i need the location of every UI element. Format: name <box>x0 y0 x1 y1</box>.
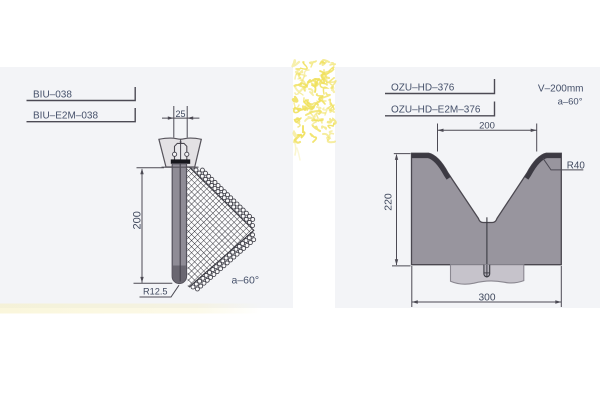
svg-text:OZU–HD–376: OZU–HD–376 <box>391 83 455 94</box>
svg-text:OZU–HD–E2M–376: OZU–HD–E2M–376 <box>391 105 481 116</box>
svg-text:a–60°: a–60° <box>232 275 260 287</box>
svg-text:25: 25 <box>175 109 185 119</box>
svg-text:200: 200 <box>132 211 144 229</box>
svg-text:200: 200 <box>479 121 495 132</box>
svg-text:BIU–E2M–038: BIU–E2M–038 <box>33 111 98 122</box>
svg-text:a–60°: a–60° <box>558 97 583 108</box>
svg-text:300: 300 <box>479 293 496 304</box>
svg-text:BIU–038: BIU–038 <box>33 90 72 101</box>
svg-text:220: 220 <box>383 193 395 211</box>
svg-text:V–200mm: V–200mm <box>538 84 584 95</box>
svg-text:R12.5: R12.5 <box>143 287 168 297</box>
